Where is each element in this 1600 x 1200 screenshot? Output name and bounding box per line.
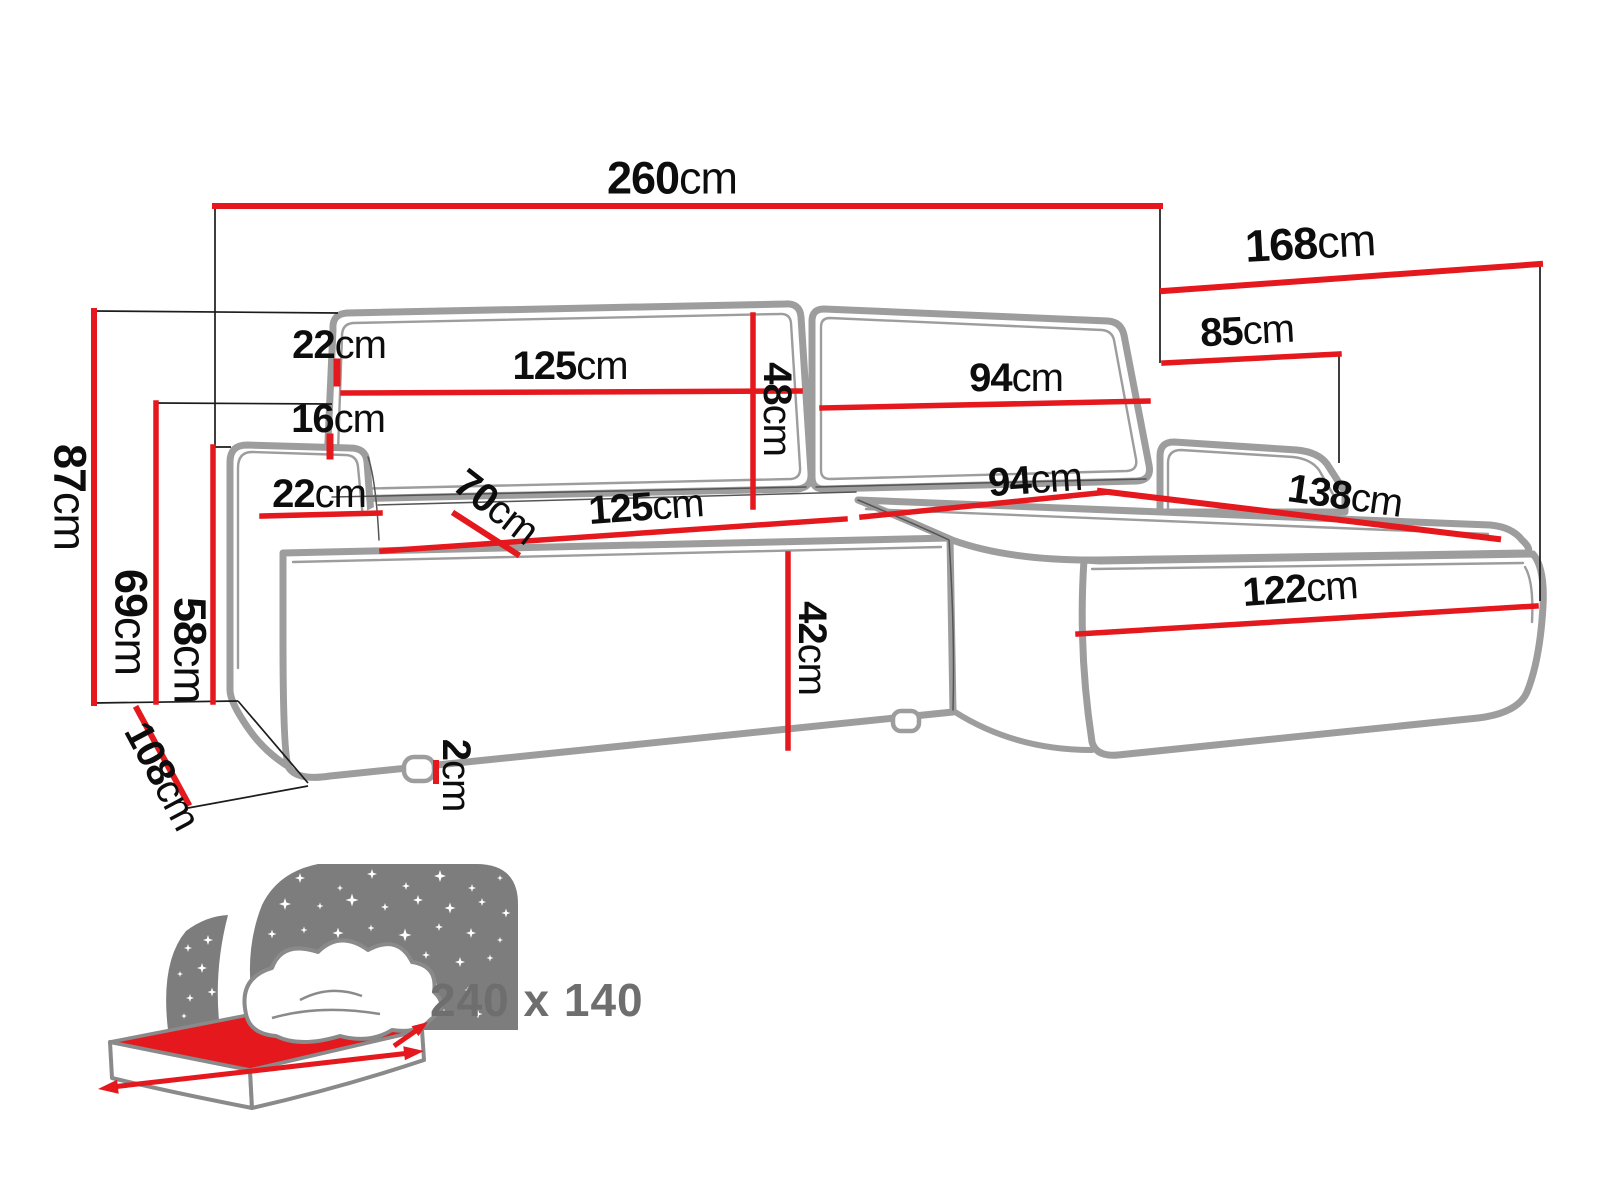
dim-label-69cm: 69cm [109, 569, 154, 675]
bed-size-label: 240 x 140 [430, 973, 644, 1027]
diagram-canvas [0, 0, 1600, 1200]
dim-label-42cm: 42cm [792, 601, 832, 695]
dim-label-2cm: 2cm [436, 739, 476, 812]
dim-label-260cm: 260cm [607, 156, 737, 201]
dim-label-122cm: 122cm [1241, 565, 1359, 613]
dim-label-22cm-low: 22cm [272, 474, 366, 514]
sofa-leg-left [404, 757, 434, 781]
dim-label-48cm: 48cm [757, 362, 797, 456]
sofa-outline-drawing [230, 304, 1543, 781]
dim-label-85cm: 85cm [1199, 309, 1295, 354]
seat-front [283, 538, 953, 777]
dim-label-125cm-top: 125cm [512, 346, 627, 386]
sofa-dimension-diagram: 260cm 168cm 85cm 87cm 69cm 58cm 108cm 22… [0, 0, 1600, 1200]
dim-label-22cm-top: 22cm [292, 325, 386, 365]
sofa-leg-middle [893, 711, 919, 731]
dim-label-94cm-top: 94cm [969, 358, 1063, 398]
dim-label-125cm-low: 125cm [587, 483, 705, 531]
dim-label-58cm: 58cm [168, 597, 213, 703]
dim-label-16cm: 16cm [291, 399, 385, 439]
dim-label-168cm: 168cm [1244, 217, 1376, 269]
starry-night-shape-small [166, 915, 228, 1030]
dim-label-94cm-low: 94cm [987, 457, 1083, 503]
back-cushion-left [326, 304, 811, 499]
dim-label-87cm: 87cm [48, 444, 93, 550]
